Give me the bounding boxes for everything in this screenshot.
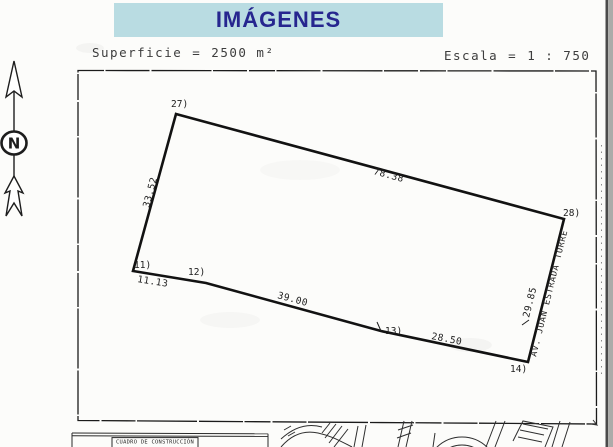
survey-plan-drawing: N 27) 28) 14) 13) 12) 11) 33.52 78.38 29…: [0, 0, 613, 447]
parcel-polygon: [133, 114, 564, 362]
scan-edge: [602, 0, 613, 447]
side-length-78-38: 78.38: [372, 166, 405, 185]
tick-mark-right-side: [522, 320, 529, 325]
vertex-label-13: 13): [385, 326, 402, 337]
construction-table-title: CUADRO DE CONSTRUCCIÓN: [116, 439, 194, 446]
vertex-label-12: 12): [188, 267, 205, 278]
vertex-label-27: 27): [171, 99, 188, 110]
side-length-33-52: 33.52: [141, 176, 160, 209]
side-length-29-85: 29.85: [521, 286, 539, 319]
vertex-label-14: 14): [510, 364, 527, 375]
vertex-label-28: 28): [563, 208, 580, 219]
location-sketch: [281, 421, 570, 447]
vertex-label-11: 11): [134, 260, 151, 271]
compass-north-letter: N: [8, 135, 21, 153]
